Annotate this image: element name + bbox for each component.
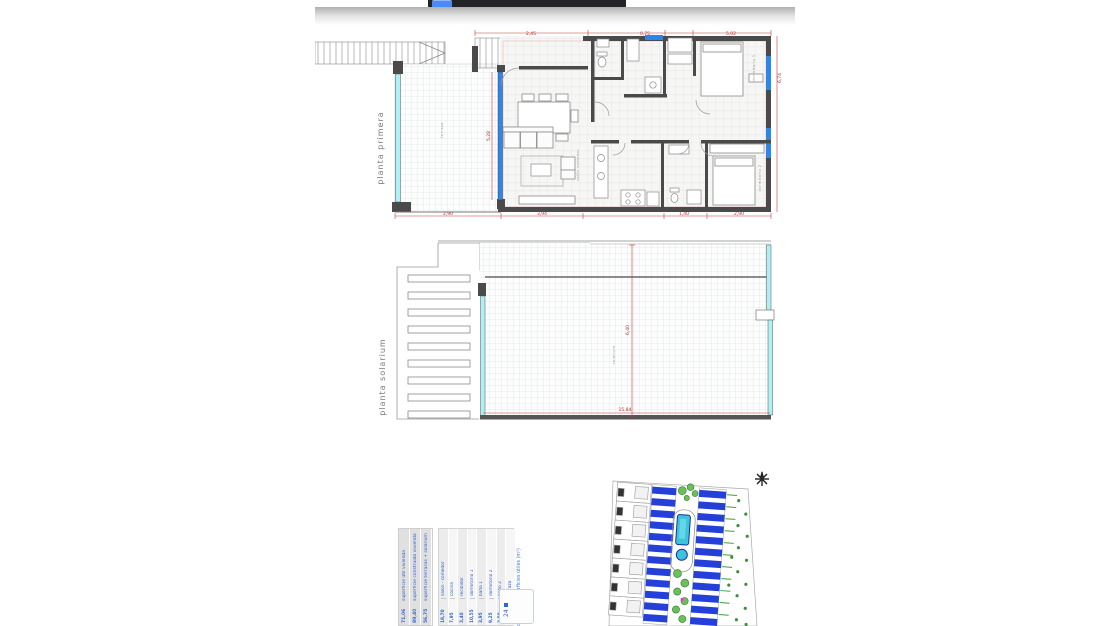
table-row: 3,95 baño 1: [477, 529, 487, 625]
dim-right-side: 6,74: [777, 73, 783, 83]
first-floor-plan-title: planta primera: [376, 111, 385, 184]
image-top-gradient: [315, 7, 795, 25]
area-value: 18,70: [441, 599, 446, 625]
site-marker: [681, 598, 684, 601]
unit-number: 24: [503, 609, 510, 617]
terrace: terraza: [392, 61, 501, 212]
area-label: superficie construida vivienda: [413, 529, 418, 601]
legend-swatch: [504, 603, 508, 607]
area-value: 56,75: [424, 601, 429, 625]
area-label: dormitorio 2: [489, 529, 494, 599]
solarium-glass-right-lower: [768, 320, 773, 415]
unit-number-box: 24: [499, 589, 534, 624]
dim-top-porch: 2,45: [526, 31, 536, 37]
living-label: salón comedor: [575, 149, 580, 181]
table-row: 9,25 dormitorio 2: [487, 529, 497, 625]
table-row: 7,95 cocina: [449, 529, 459, 625]
area-label: baño 1: [479, 529, 484, 599]
solarium-room-label: solarium: [611, 346, 616, 365]
solarium-deck: [438, 241, 774, 420]
exterior-stairs: [315, 42, 445, 64]
tv-bench: [519, 196, 575, 204]
solarium-dim-bottom: 15,84: [619, 407, 632, 413]
solarium-glass-left: [481, 296, 486, 417]
area-label: salón - comedor: [441, 529, 446, 599]
table-row: 89,40 superficie construida vivienda: [410, 529, 421, 625]
table-row: 18,70 salón - comedor: [439, 529, 449, 625]
dim-top-mid: 0,75: [640, 31, 650, 37]
solarium-dim-vertical: 6,40: [625, 325, 631, 335]
solarium-glass-right-upper: [767, 245, 772, 310]
area-table-summary: 71,06 superficie útil vivienda 89,40 sup…: [398, 528, 433, 626]
area-value: 10,55: [470, 599, 475, 625]
table-row: 10,55 dormitorio 1: [468, 529, 478, 625]
table-row: 71,06 superficie útil vivienda: [399, 529, 410, 625]
wall-cap: [393, 61, 403, 74]
area-value: 71,06: [402, 601, 407, 625]
sofa: [503, 127, 553, 148]
dim-bottom-bath: 1,40: [679, 211, 689, 217]
area-label: superficie útil vivienda: [402, 529, 407, 601]
round-spa-pool: [676, 549, 688, 561]
area-label: recibidor: [460, 529, 465, 599]
dim-bottom-living: 3,94: [537, 211, 547, 217]
dim-living-window: 5,28: [486, 131, 492, 141]
area-label: superficie terrazas + solarium: [424, 529, 429, 601]
dim-top-right: 5,02: [726, 31, 736, 37]
area-value: 9,25: [489, 599, 494, 625]
area-value: 89,40: [413, 601, 418, 625]
pergola-slats: [408, 275, 470, 418]
table-row: 56,75 superficie terrazas + solarium: [421, 529, 432, 625]
terrace-label: terraza: [439, 122, 444, 138]
wardrobe: [668, 38, 692, 64]
bedroom1-label: dormitorio 1: [751, 54, 756, 81]
dim-bottom-terrace: 2,90: [443, 211, 453, 217]
area-value: 3,40: [460, 599, 465, 625]
north-star-icon: [755, 471, 769, 486]
solarium-plan-title: planta solarium: [378, 338, 387, 415]
area-label: cocina: [450, 529, 455, 599]
armchair: [561, 157, 575, 179]
area-label: dormitorio 1: [470, 529, 475, 599]
solarium-plan: 6,40 15,84 solarium planta solarium: [315, 235, 795, 425]
dim-bottom-bedroom: 2,90: [734, 211, 744, 217]
area-value: 7,95: [450, 599, 455, 625]
first-floor-plan: terraza: [315, 30, 795, 220]
table-row: 3,40 recibidor: [458, 529, 468, 625]
terrace-glass-rail: [396, 74, 401, 202]
area-value: 3,95: [479, 599, 484, 625]
bedroom2-label: dormitorio 2: [757, 164, 762, 191]
site-plan: [595, 462, 795, 626]
